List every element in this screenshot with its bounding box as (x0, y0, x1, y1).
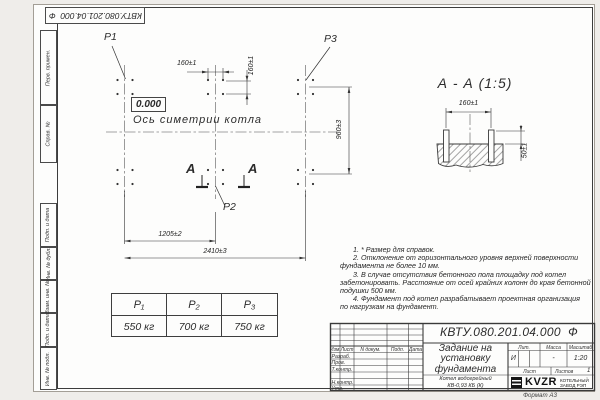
tb-mass-header: Масса (540, 345, 567, 351)
tb-row-tkontr: Т.контр. (332, 367, 353, 373)
tb-col-list: Лист (340, 347, 354, 353)
tb-sheets-label: Листов (555, 369, 573, 375)
level-mark-box: 0.000 (131, 97, 166, 112)
tb-mass-value: - (540, 355, 567, 362)
product-name-line: КВ-0,93 КБ (К) (423, 383, 508, 390)
section-dimension-arrows (446, 111, 522, 149)
dim-bolt-spacing-vertical: 160±1 (248, 56, 255, 75)
dim-bolt-spacing-horizontal: 160±1 (177, 60, 196, 67)
section-view-title: А - А (1:5) (430, 75, 520, 91)
load-values-table: P₁ P₂ P₃ 550 кг 700 кг 750 кг (111, 293, 278, 337)
title-block-doc-number: КВТУ.080.201.04.000 Ф (423, 325, 595, 339)
load-header-p2: P₂ (167, 294, 222, 316)
load-point-label-p3: P3 (324, 33, 337, 45)
tb-row-nkontr: Н.контр. (332, 380, 354, 386)
tb-col-izm: Изм. (330, 347, 340, 353)
section-letter-left: А (186, 161, 195, 176)
kvzr-logo-icon (511, 377, 522, 388)
load-value-p2: 700 кг (167, 316, 222, 337)
tb-col-ndokum: N докум. (354, 347, 387, 353)
kvzr-logo-caption: КОТЕЛЬНЫЙ ЗАВОД РЭП (560, 378, 589, 388)
kvzr-caption-line: ЗАВОД РЭП (560, 383, 589, 388)
tb-sheets-value: 1 (587, 368, 590, 374)
tb-col-podp: Подп. (387, 347, 408, 353)
plan-section-cut-marks (196, 175, 250, 187)
load-header-p3: P₃ (222, 294, 277, 316)
level-mark-value: 0.000 (136, 99, 161, 110)
boiler-symmetry-axis-label: Ось симетрии котла (133, 114, 262, 126)
tb-lit-header: Лит. (508, 345, 540, 351)
tb-scale-header: Масштаб (567, 345, 594, 351)
tb-sheet-label: Лист (508, 369, 551, 375)
anchor-bolt-left (444, 130, 450, 162)
note-line: по нагрузкам на фундамент. (340, 303, 594, 311)
drawing-sheet-page: Перв. примен. Справ. № Подп. и дата Инв.… (0, 0, 600, 400)
section-letter-right: А (248, 161, 257, 176)
load-point-label-p2: P2 (223, 201, 236, 213)
tb-row-razrab: Разраб. (332, 354, 351, 360)
tb-row-prov: Пров. (332, 360, 346, 366)
format-label: Формат А3 (510, 392, 570, 399)
load-value-p1: 550 кг (112, 316, 167, 337)
anchor-bolt-right (489, 130, 495, 162)
dim-plan-total-length-2410: 2410±3 (195, 248, 235, 255)
load-value-p3: 750 кг (222, 316, 277, 337)
dim-plan-half-length-1205: 1205±2 (152, 231, 188, 238)
dim-section-bolt-spacing: 160±1 (448, 100, 489, 107)
tb-lit-value: И (508, 355, 519, 362)
tb-col-data: Дата (409, 347, 423, 353)
kvzr-logo-text: KVZR (525, 376, 557, 388)
technical-notes: 1. * Размер для справок. 2. Отклонение о… (340, 246, 594, 312)
drawing-linework (0, 0, 600, 400)
load-header-p1: P₁ (112, 294, 167, 316)
drawing-title: Задание на установку фундамента (423, 344, 508, 375)
drawing-title-line: фундамента (423, 365, 508, 375)
product-name: Котел водогрейный КВ-0,93 КБ (К) (423, 376, 508, 389)
dim-section-bolt-height-50: 50±1 (521, 143, 528, 159)
tb-scale-value: 1:20 (567, 355, 594, 362)
plan-centerlines (106, 65, 470, 199)
tb-row-utv: Утв. (332, 386, 344, 392)
load-point-label-p1: P1 (104, 31, 117, 43)
dim-plan-width-960: 960±3 (336, 120, 343, 139)
